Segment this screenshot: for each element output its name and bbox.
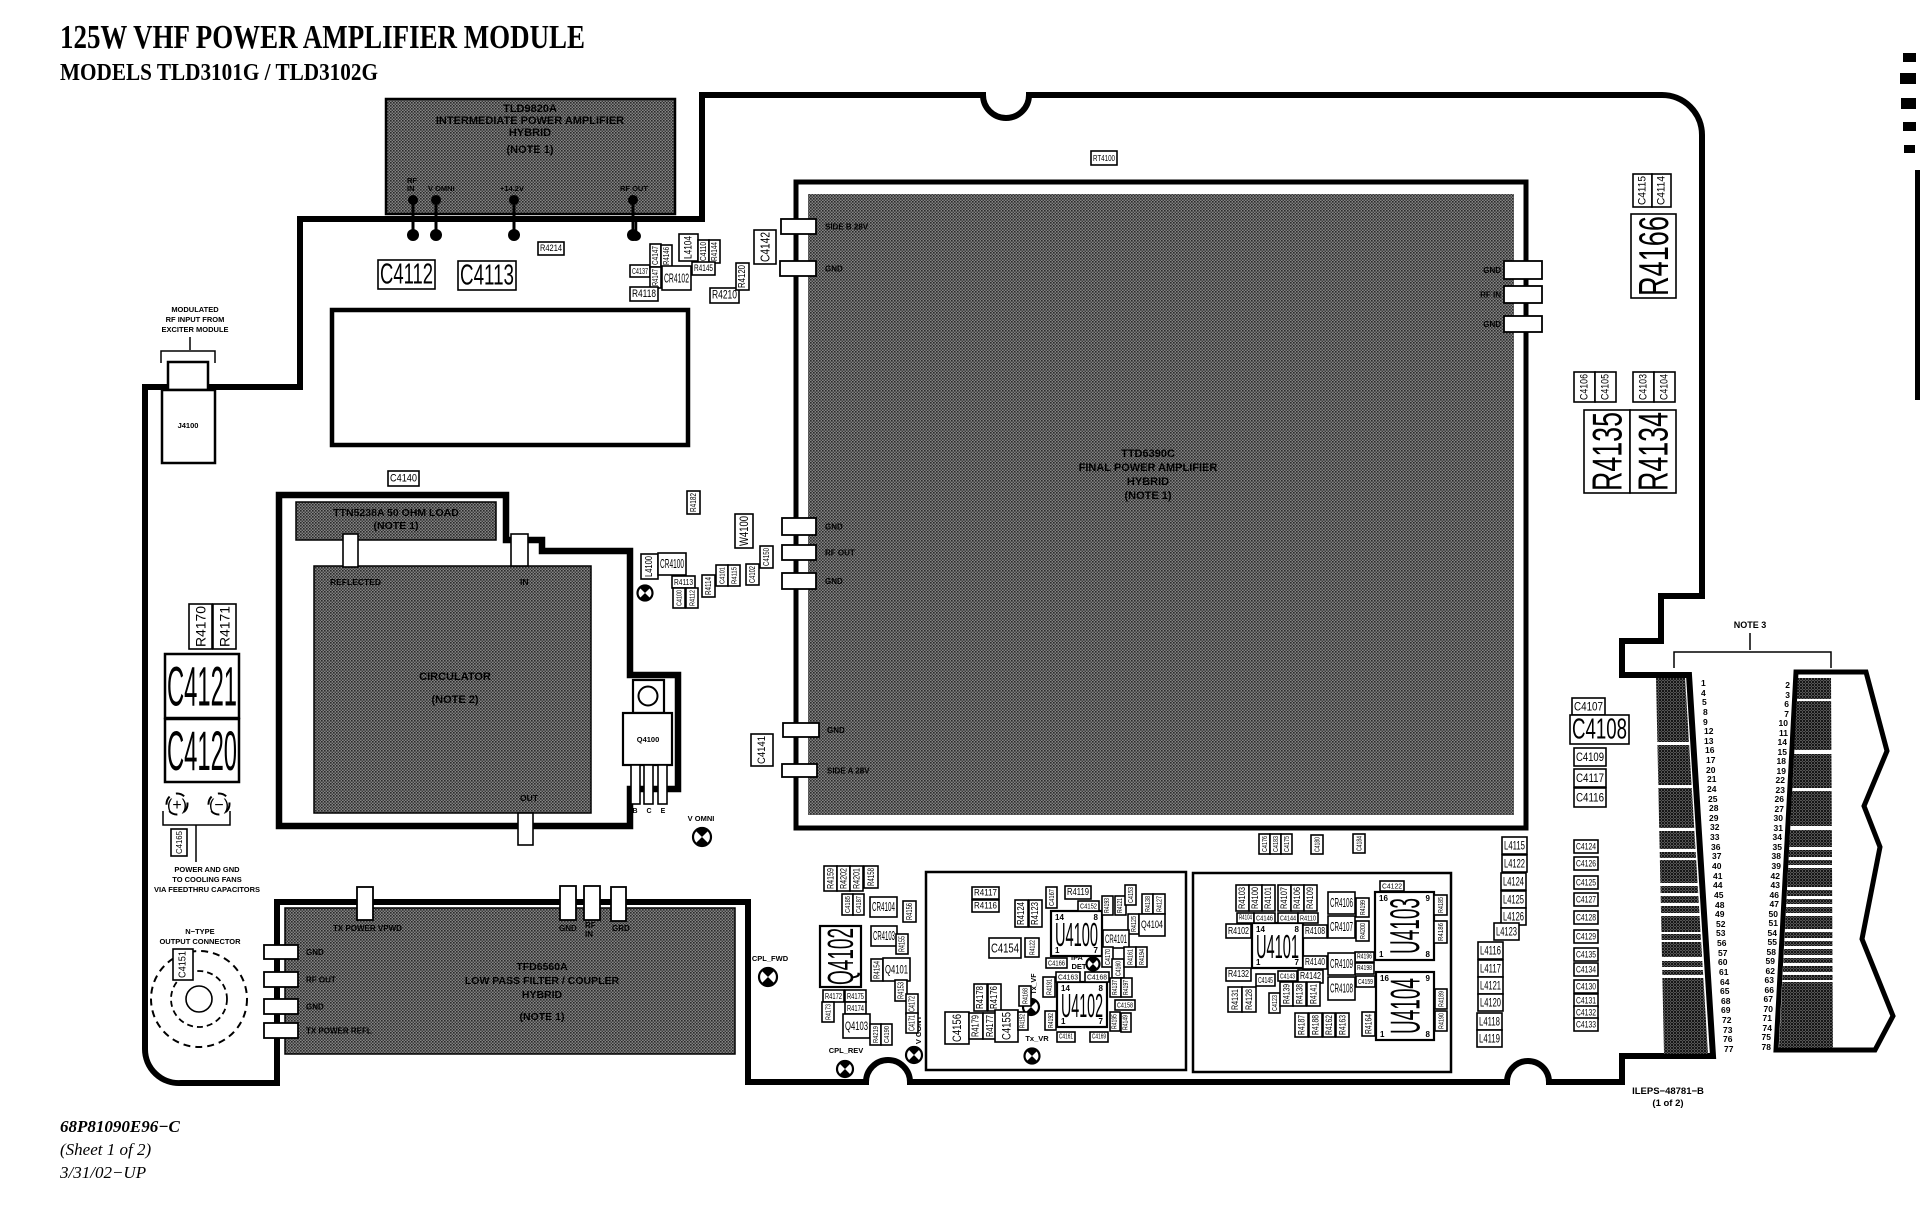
svg-text:R4127: R4127 <box>1155 896 1164 912</box>
svg-text:R4188: R4188 <box>1311 1015 1321 1035</box>
svg-text:59: 59 <box>1766 956 1776 966</box>
svg-text:Tx_VR: Tx_VR <box>1025 1034 1049 1043</box>
svg-text:R4116: R4116 <box>974 901 997 912</box>
svg-text:L4122: L4122 <box>1504 857 1525 871</box>
svg-text:R4137: R4137 <box>1112 980 1119 995</box>
svg-text:R4107: R4107 <box>1279 887 1290 909</box>
svg-text:1: 1 <box>1380 1030 1385 1039</box>
svg-text:R4201: R4201 <box>852 868 862 889</box>
svg-text:GND: GND <box>1483 320 1501 329</box>
svg-text:R4192: R4192 <box>1046 1013 1055 1028</box>
svg-text:V OMNI: V OMNI <box>688 814 715 823</box>
svg-text:R4117: R4117 <box>974 888 997 899</box>
svg-text:C4110: C4110 <box>699 242 708 261</box>
svg-text:C4100: C4100 <box>675 590 684 606</box>
svg-text:R4142: R4142 <box>1300 971 1321 982</box>
svg-text:C4126: C4126 <box>1576 859 1596 869</box>
svg-text:OUTPUT CONNECTOR: OUTPUT CONNECTOR <box>159 937 241 946</box>
svg-text:R4132: R4132 <box>1228 969 1249 980</box>
svg-text:(NOTE 2): (NOTE 2) <box>431 694 478 706</box>
svg-text:C4169: C4169 <box>1092 1034 1106 1041</box>
svg-text:16: 16 <box>1705 745 1715 755</box>
svg-text:(NOTE 1): (NOTE 1) <box>1124 490 1171 502</box>
svg-text:8: 8 <box>1426 950 1431 959</box>
svg-text:CR4107: CR4107 <box>1330 920 1353 934</box>
svg-text:R4179: R4179 <box>971 1015 982 1037</box>
svg-text:30: 30 <box>1774 813 1784 823</box>
svg-text:R4113: R4113 <box>674 577 693 587</box>
svg-text:R4134: R4134 <box>1630 412 1677 491</box>
svg-text:MODELS TLD3101G / TLD3102G: MODELS TLD3101G / TLD3102G <box>60 60 378 86</box>
svg-text:26: 26 <box>1775 794 1785 804</box>
svg-text:CR4109: CR4109 <box>1330 957 1353 971</box>
svg-text:7: 7 <box>1295 958 1300 967</box>
svg-text:N−TYPE: N−TYPE <box>185 927 214 936</box>
svg-text:R4128: R4128 <box>1244 989 1254 1010</box>
svg-text:V OMNI: V OMNI <box>428 184 455 193</box>
svg-text:RF: RF <box>585 921 596 930</box>
svg-text:5: 5 <box>1702 697 1707 707</box>
svg-text:C4158: C4158 <box>1117 1001 1133 1010</box>
svg-text:C4142: C4142 <box>758 232 773 262</box>
svg-text:32: 32 <box>1710 822 1720 832</box>
svg-text:R4219: R4219 <box>871 1026 880 1043</box>
svg-text:RF OUT: RF OUT <box>825 549 855 558</box>
svg-text:34: 34 <box>1773 832 1783 842</box>
svg-text:14: 14 <box>1061 984 1070 993</box>
svg-text:C4167: C4167 <box>1047 889 1056 906</box>
svg-text:45: 45 <box>1714 890 1724 900</box>
svg-text:LOW PASS FILTER / COUPLER: LOW PASS FILTER / COUPLER <box>465 975 620 987</box>
svg-text:1: 1 <box>1061 1017 1066 1026</box>
svg-text:R4138: R4138 <box>1143 896 1152 912</box>
svg-text:12: 12 <box>1704 726 1714 736</box>
svg-text:1: 1 <box>1701 678 1706 688</box>
svg-text:24: 24 <box>1707 784 1717 794</box>
svg-text:L4100: L4100 <box>644 556 655 577</box>
svg-text:125W VHF POWER AMPLIFIER MODUL: 125W VHF POWER AMPLIFIER MODULE <box>60 19 585 56</box>
svg-text:6: 6 <box>1784 699 1789 709</box>
svg-text:8: 8 <box>1099 984 1104 993</box>
svg-text:R4172: R4172 <box>825 991 842 1001</box>
svg-text:TO COOLING FANS: TO COOLING FANS <box>172 875 241 884</box>
svg-text:IN: IN <box>407 184 415 193</box>
svg-text:75: 75 <box>1762 1032 1772 1042</box>
svg-text:77: 77 <box>1724 1044 1734 1054</box>
svg-text:C4171: C4171 <box>908 1015 917 1031</box>
svg-text:51: 51 <box>1769 918 1779 928</box>
svg-text:14: 14 <box>1055 913 1064 922</box>
svg-text:C4123: C4123 <box>1270 995 1279 1011</box>
svg-text:REFLECTED: REFLECTED <box>330 577 381 587</box>
svg-text:R4124: R4124 <box>1016 902 1027 925</box>
svg-text:CIRCULATOR: CIRCULATOR <box>419 671 491 683</box>
svg-text:GND: GND <box>306 948 324 957</box>
svg-text:R4196: R4196 <box>1357 954 1372 961</box>
svg-text:C4127: C4127 <box>1576 895 1596 905</box>
svg-text:R4102: R4102 <box>1228 925 1249 937</box>
svg-text:R4171: R4171 <box>217 606 233 647</box>
svg-text:39: 39 <box>1772 861 1782 871</box>
svg-text:R4109: R4109 <box>1305 887 1316 909</box>
svg-text:GND: GND <box>825 265 843 274</box>
svg-text:C4108: C4108 <box>1572 714 1627 746</box>
svg-text:R4112: R4112 <box>688 590 697 606</box>
svg-text:C4112: C4112 <box>380 259 433 291</box>
svg-text:R4164: R4164 <box>1364 1014 1374 1034</box>
svg-text:L4125: L4125 <box>1503 893 1524 907</box>
svg-text:R4140: R4140 <box>1305 957 1325 968</box>
svg-text:CR4100: CR4100 <box>660 557 684 571</box>
svg-text:16: 16 <box>1379 894 1388 903</box>
svg-text:L4104: L4104 <box>683 236 695 259</box>
svg-text:9: 9 <box>1426 894 1431 903</box>
svg-text:C4131: C4131 <box>1576 996 1596 1006</box>
svg-text:C4184: C4184 <box>1355 836 1364 851</box>
svg-text:SIDE A 28V: SIDE A 28V <box>827 767 870 776</box>
svg-text:C4105: C4105 <box>1600 374 1612 400</box>
svg-text:ILEPS−48781−B: ILEPS−48781−B <box>1632 1086 1704 1097</box>
svg-text:R4114: R4114 <box>704 577 713 595</box>
svg-text:C4152: C4152 <box>1080 902 1097 911</box>
svg-text:TTD6390C: TTD6390C <box>1121 448 1175 460</box>
svg-text:VIA FEEDTHRU CAPACITORS: VIA FEEDTHRU CAPACITORS <box>154 885 260 894</box>
svg-text:R4103: R4103 <box>1237 887 1248 909</box>
svg-text:R4156: R4156 <box>905 903 914 920</box>
svg-text:10: 10 <box>1779 718 1789 728</box>
svg-text:L4124: L4124 <box>1503 875 1524 889</box>
svg-text:IN: IN <box>585 930 593 939</box>
svg-text:Q4102: Q4102 <box>820 928 861 985</box>
svg-text:FINAL POWER AMPLIFIER: FINAL POWER AMPLIFIER <box>1079 462 1218 474</box>
svg-text:R4195: R4195 <box>1112 1014 1119 1029</box>
svg-text:C4129: C4129 <box>1576 932 1596 942</box>
svg-text:43: 43 <box>1771 880 1781 890</box>
svg-text:GND: GND <box>306 1003 324 1012</box>
svg-text:CR4103: CR4103 <box>873 929 895 943</box>
svg-text:C4146: C4146 <box>1256 914 1273 923</box>
svg-text:53: 53 <box>1716 928 1726 938</box>
svg-text:TX POWER REFL: TX POWER REFL <box>306 1027 372 1036</box>
svg-text:(−): (−) <box>209 797 229 814</box>
svg-text:C4102: C4102 <box>748 566 757 583</box>
svg-text:R4170: R4170 <box>193 606 209 647</box>
svg-text:R4159: R4159 <box>826 868 836 889</box>
svg-text:21: 21 <box>1707 774 1717 784</box>
svg-text:(Sheet 1 of 2): (Sheet 1 of 2) <box>60 1140 151 1159</box>
svg-text:C4154: C4154 <box>991 941 1019 956</box>
svg-text:HYBRID: HYBRID <box>1127 476 1169 488</box>
svg-text:67: 67 <box>1764 994 1774 1004</box>
svg-text:R4178: R4178 <box>975 986 986 1009</box>
svg-text:CR4104: CR4104 <box>872 900 895 914</box>
svg-text:EXCITER MODULE: EXCITER MODULE <box>161 325 228 334</box>
svg-text:R4210: R4210 <box>712 290 737 302</box>
svg-text:C4165: C4165 <box>174 831 184 854</box>
svg-text:C4153: C4153 <box>1126 887 1135 903</box>
svg-text:33: 33 <box>1710 832 1720 842</box>
svg-text:C4121: C4121 <box>167 655 237 718</box>
svg-text:R4118: R4118 <box>632 288 656 300</box>
svg-text:7: 7 <box>1094 946 1099 955</box>
svg-text:R4147: R4147 <box>651 269 660 286</box>
svg-text:C4144: C4144 <box>1280 914 1296 923</box>
svg-text:L4117: L4117 <box>1480 962 1501 976</box>
svg-text:C4160: C4160 <box>1114 961 1123 976</box>
svg-text:17: 17 <box>1706 755 1716 765</box>
svg-text:37: 37 <box>1712 851 1722 861</box>
svg-text:C4163: C4163 <box>1058 973 1078 982</box>
svg-text:16: 16 <box>1380 974 1389 983</box>
svg-text:CR4106: CR4106 <box>1330 896 1353 910</box>
svg-text:C4134: C4134 <box>1576 965 1596 975</box>
svg-text:RF INPUT FROM: RF INPUT FROM <box>166 315 225 324</box>
svg-text:C4170: C4170 <box>1103 949 1112 965</box>
svg-text:CPL_FWD: CPL_FWD <box>752 954 789 963</box>
svg-text:R4162: R4162 <box>1324 1015 1334 1035</box>
svg-text:8: 8 <box>1703 707 1708 717</box>
svg-text:C4155: C4155 <box>1000 1012 1014 1040</box>
svg-text:CR4102: CR4102 <box>664 271 689 286</box>
svg-text:65: 65 <box>1720 986 1730 996</box>
svg-text:C4133: C4133 <box>1576 1020 1596 1030</box>
svg-text:9: 9 <box>1426 974 1431 983</box>
svg-text:R4153: R4153 <box>897 982 906 999</box>
svg-text:49: 49 <box>1715 909 1725 919</box>
svg-text:Q4103: Q4103 <box>845 1019 868 1033</box>
svg-text:78: 78 <box>1762 1042 1772 1052</box>
svg-text:R4119: R4119 <box>1067 887 1089 898</box>
svg-text:R4152: R4152 <box>1020 1014 1027 1028</box>
svg-text:C4107: C4107 <box>1574 700 1603 714</box>
svg-text:C4130: C4130 <box>1576 982 1596 992</box>
svg-text:R4149: R4149 <box>1123 1015 1130 1030</box>
svg-text:NOTE 3: NOTE 3 <box>1734 620 1767 630</box>
svg-text:C4150: C4150 <box>762 548 771 566</box>
svg-text:R4161: R4161 <box>1126 949 1135 965</box>
svg-text:14: 14 <box>1256 925 1265 934</box>
svg-text:TX POWER VPWD: TX POWER VPWD <box>333 924 402 933</box>
svg-text:HYBRID: HYBRID <box>509 127 551 139</box>
svg-text:Tx_VF: Tx_VF <box>1031 973 1038 995</box>
svg-text:22: 22 <box>1776 775 1786 785</box>
svg-text:C4125: C4125 <box>1576 878 1596 888</box>
svg-text:B: B <box>632 808 637 815</box>
svg-text:R4158: R4158 <box>866 868 876 886</box>
svg-text:R4115: R4115 <box>730 567 739 584</box>
svg-text:1: 1 <box>1055 946 1060 955</box>
svg-text:R4202: R4202 <box>839 868 849 889</box>
svg-text:R4187: R4187 <box>1297 1015 1307 1035</box>
svg-text:OUT: OUT <box>520 793 539 803</box>
svg-text:76: 76 <box>1723 1034 1733 1044</box>
svg-text:C4143: C4143 <box>1280 972 1295 981</box>
svg-text:R4141: R4141 <box>1309 984 1319 1004</box>
svg-text:C4161: C4161 <box>1059 1034 1073 1041</box>
svg-text:C4141: C4141 <box>756 736 768 764</box>
svg-text:GND: GND <box>1483 266 1501 275</box>
svg-text:2: 2 <box>1785 680 1790 690</box>
svg-text:R4125: R4125 <box>1129 916 1138 932</box>
svg-text:U4104: U4104 <box>1382 978 1429 1034</box>
svg-text:C4116: C4116 <box>1576 791 1604 805</box>
svg-text:1: 1 <box>1256 958 1261 967</box>
svg-text:C4104: C4104 <box>1659 374 1671 400</box>
svg-text:C4168: C4168 <box>1087 973 1107 982</box>
svg-text:R4175: R4175 <box>847 991 864 1001</box>
svg-text:R4197: R4197 <box>1123 980 1130 995</box>
svg-text:18: 18 <box>1777 756 1787 766</box>
svg-text:R4145: R4145 <box>694 263 713 274</box>
svg-text:28: 28 <box>1709 803 1719 813</box>
svg-text:C4132: C4132 <box>1576 1008 1596 1018</box>
svg-text:L4123: L4123 <box>1496 925 1517 939</box>
svg-text:R4193: R4193 <box>1104 898 1111 913</box>
svg-text:C4187: C4187 <box>854 896 863 913</box>
svg-text:C4159: C4159 <box>1358 977 1373 986</box>
svg-text:U4103: U4103 <box>1381 898 1428 954</box>
svg-text:R4100: R4100 <box>1250 887 1261 909</box>
svg-text:R4185: R4185 <box>1436 897 1445 913</box>
svg-text:W4100: W4100 <box>737 516 751 546</box>
svg-text:TFD6560A: TFD6560A <box>516 961 568 973</box>
svg-text:GND: GND <box>825 577 843 586</box>
svg-text:CPL_REV: CPL_REV <box>829 1046 864 1055</box>
svg-text:C4185: C4185 <box>843 896 852 913</box>
svg-text:C4147: C4147 <box>651 246 660 265</box>
svg-text:8: 8 <box>1094 913 1099 922</box>
svg-text:C4183: C4183 <box>1271 836 1280 852</box>
svg-text:R4154: R4154 <box>873 961 882 979</box>
svg-text:+14.2V: +14.2V <box>500 184 524 193</box>
svg-text:C4140: C4140 <box>390 473 417 485</box>
svg-text:3/31/02−UP: 3/31/02−UP <box>59 1163 146 1182</box>
svg-text:R4122: R4122 <box>1028 940 1037 955</box>
svg-text:Q4101: Q4101 <box>885 963 908 977</box>
svg-text:60: 60 <box>1718 957 1728 967</box>
svg-text:C4135: C4135 <box>1576 950 1596 960</box>
svg-text:GND: GND <box>827 726 845 735</box>
svg-text:C4166: C4166 <box>1048 959 1065 968</box>
svg-text:L4119: L4119 <box>1479 1032 1500 1046</box>
svg-text:R4155: R4155 <box>898 936 907 952</box>
svg-text:MODULATED: MODULATED <box>171 305 219 314</box>
svg-text:SIDE B 28V: SIDE B 28V <box>825 223 869 232</box>
svg-text:(+): (+) <box>167 797 187 814</box>
svg-text:Q4104: Q4104 <box>1141 919 1163 931</box>
svg-text:R4190: R4190 <box>1437 1013 1446 1029</box>
svg-text:8: 8 <box>1426 1030 1431 1039</box>
svg-text:R4163: R4163 <box>1338 1015 1348 1035</box>
svg-text:R4214: R4214 <box>540 243 562 254</box>
svg-text:RF OUT: RF OUT <box>620 184 648 193</box>
svg-text:(NOTE 1): (NOTE 1) <box>520 1011 565 1023</box>
svg-text:RT4100: RT4100 <box>1093 153 1115 163</box>
svg-text:C4114: C4114 <box>1656 176 1668 205</box>
svg-text:55: 55 <box>1768 937 1778 947</box>
svg-text:CR4108: CR4108 <box>1330 982 1353 996</box>
svg-text:DET: DET <box>1072 962 1087 971</box>
svg-text:68P81090E96−C: 68P81090E96−C <box>60 1117 181 1136</box>
svg-text:GND: GND <box>559 924 577 933</box>
svg-text:GRD: GRD <box>612 924 630 933</box>
svg-text:C4120: C4120 <box>167 719 237 782</box>
svg-text:R4186: R4186 <box>1436 923 1445 941</box>
svg-text:C4115: C4115 <box>1637 176 1649 205</box>
svg-text:(NOTE 1): (NOTE 1) <box>374 520 419 532</box>
svg-text:J4100: J4100 <box>178 421 199 430</box>
svg-text:R4104: R4104 <box>1239 915 1252 922</box>
svg-text:C4124: C4124 <box>1576 842 1596 852</box>
svg-text:R4120: R4120 <box>737 265 748 288</box>
svg-text:71: 71 <box>1763 1013 1773 1023</box>
svg-text:7: 7 <box>1099 1017 1104 1026</box>
svg-text:1: 1 <box>1379 950 1384 959</box>
svg-text:C4113: C4113 <box>460 260 514 292</box>
svg-text:R4123: R4123 <box>1030 902 1041 925</box>
svg-text:C4128: C4128 <box>1576 913 1596 923</box>
svg-text:L4120: L4120 <box>1480 996 1501 1010</box>
svg-text:69: 69 <box>1721 1005 1731 1015</box>
svg-text:R4106: R4106 <box>1292 887 1303 909</box>
svg-text:C4117: C4117 <box>1576 771 1604 785</box>
svg-text:R4110: R4110 <box>1300 914 1316 923</box>
svg-text:47: 47 <box>1770 899 1780 909</box>
svg-text:C4190: C4190 <box>882 1026 891 1043</box>
svg-text:R4144: R4144 <box>710 242 719 261</box>
svg-text:C4175: C4175 <box>1282 836 1291 852</box>
svg-text:61: 61 <box>1719 967 1729 977</box>
svg-text:R4108: R4108 <box>1305 926 1325 937</box>
svg-text:R4199: R4199 <box>1358 900 1367 915</box>
svg-text:IN: IN <box>520 577 529 587</box>
svg-text:44: 44 <box>1713 880 1723 890</box>
svg-text:(NOTE 1): (NOTE 1) <box>506 144 553 156</box>
svg-text:TLD9820A: TLD9820A <box>503 103 557 115</box>
svg-text:C4106: C4106 <box>1579 374 1591 400</box>
svg-text:R4198: R4198 <box>1357 965 1372 972</box>
svg-text:POWER AND GND: POWER AND GND <box>174 865 240 874</box>
svg-text:RF IN: RF IN <box>1480 291 1501 300</box>
svg-text:40: 40 <box>1712 861 1722 871</box>
svg-text:E: E <box>661 808 666 815</box>
svg-text:R4131: R4131 <box>1230 989 1240 1010</box>
svg-text:R4191: R4191 <box>1045 979 1054 995</box>
svg-text:R4189: R4189 <box>1437 991 1446 1007</box>
svg-text:C4101: C4101 <box>718 567 727 584</box>
svg-text:L4116: L4116 <box>1480 944 1501 958</box>
svg-text:R4168: R4168 <box>1021 988 1030 1004</box>
svg-text:72: 72 <box>1722 1015 1732 1025</box>
svg-text:C4122: C4122 <box>1382 882 1402 891</box>
svg-text:R4182: R4182 <box>689 493 698 512</box>
svg-text:14: 14 <box>1778 737 1788 747</box>
svg-text:GND: GND <box>825 523 843 532</box>
svg-text:CR4101: CR4101 <box>1105 932 1127 946</box>
svg-text:C4103: C4103 <box>1638 374 1650 400</box>
svg-text:L4118: L4118 <box>1479 1015 1500 1029</box>
svg-text:RF OUT: RF OUT <box>306 976 336 985</box>
svg-text:38: 38 <box>1772 851 1782 861</box>
svg-text:R4174: R4174 <box>847 1003 864 1013</box>
svg-text:56: 56 <box>1717 938 1727 948</box>
svg-text:R4173: R4173 <box>824 1004 833 1020</box>
svg-text:R4138: R4138 <box>1295 984 1305 1004</box>
svg-text:C4180: C4180 <box>1313 837 1322 852</box>
svg-text:C4176: C4176 <box>1260 836 1269 852</box>
svg-text:R4166: R4166 <box>1630 216 1677 296</box>
svg-text:R4146: R4146 <box>662 247 671 265</box>
